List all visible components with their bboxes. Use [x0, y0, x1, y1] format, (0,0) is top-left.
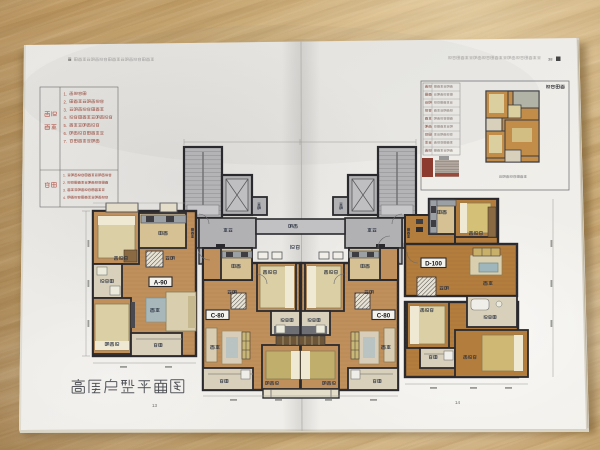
svg-text:D-100: D-100: [425, 261, 442, 268]
svg-text:5.: 5.: [64, 123, 68, 128]
svg-text:6.: 6.: [64, 131, 68, 136]
svg-text:13: 13: [152, 403, 158, 408]
svg-text:2.: 2.: [63, 181, 66, 185]
svg-text:14: 14: [455, 400, 461, 405]
svg-text:7.: 7.: [64, 139, 68, 144]
svg-text:1.: 1.: [63, 174, 66, 178]
svg-text:2.: 2.: [64, 99, 68, 104]
svg-text:4.: 4.: [63, 196, 66, 200]
svg-text:C-80: C-80: [377, 313, 391, 320]
svg-text:38: 38: [548, 57, 553, 62]
svg-text:3.: 3.: [64, 107, 68, 112]
svg-text:A-90: A-90: [154, 280, 168, 287]
svg-text:4.: 4.: [64, 115, 68, 120]
svg-text:3.: 3.: [63, 189, 66, 193]
svg-text:C-80: C-80: [211, 313, 225, 320]
svg-text:1.: 1.: [64, 92, 68, 97]
